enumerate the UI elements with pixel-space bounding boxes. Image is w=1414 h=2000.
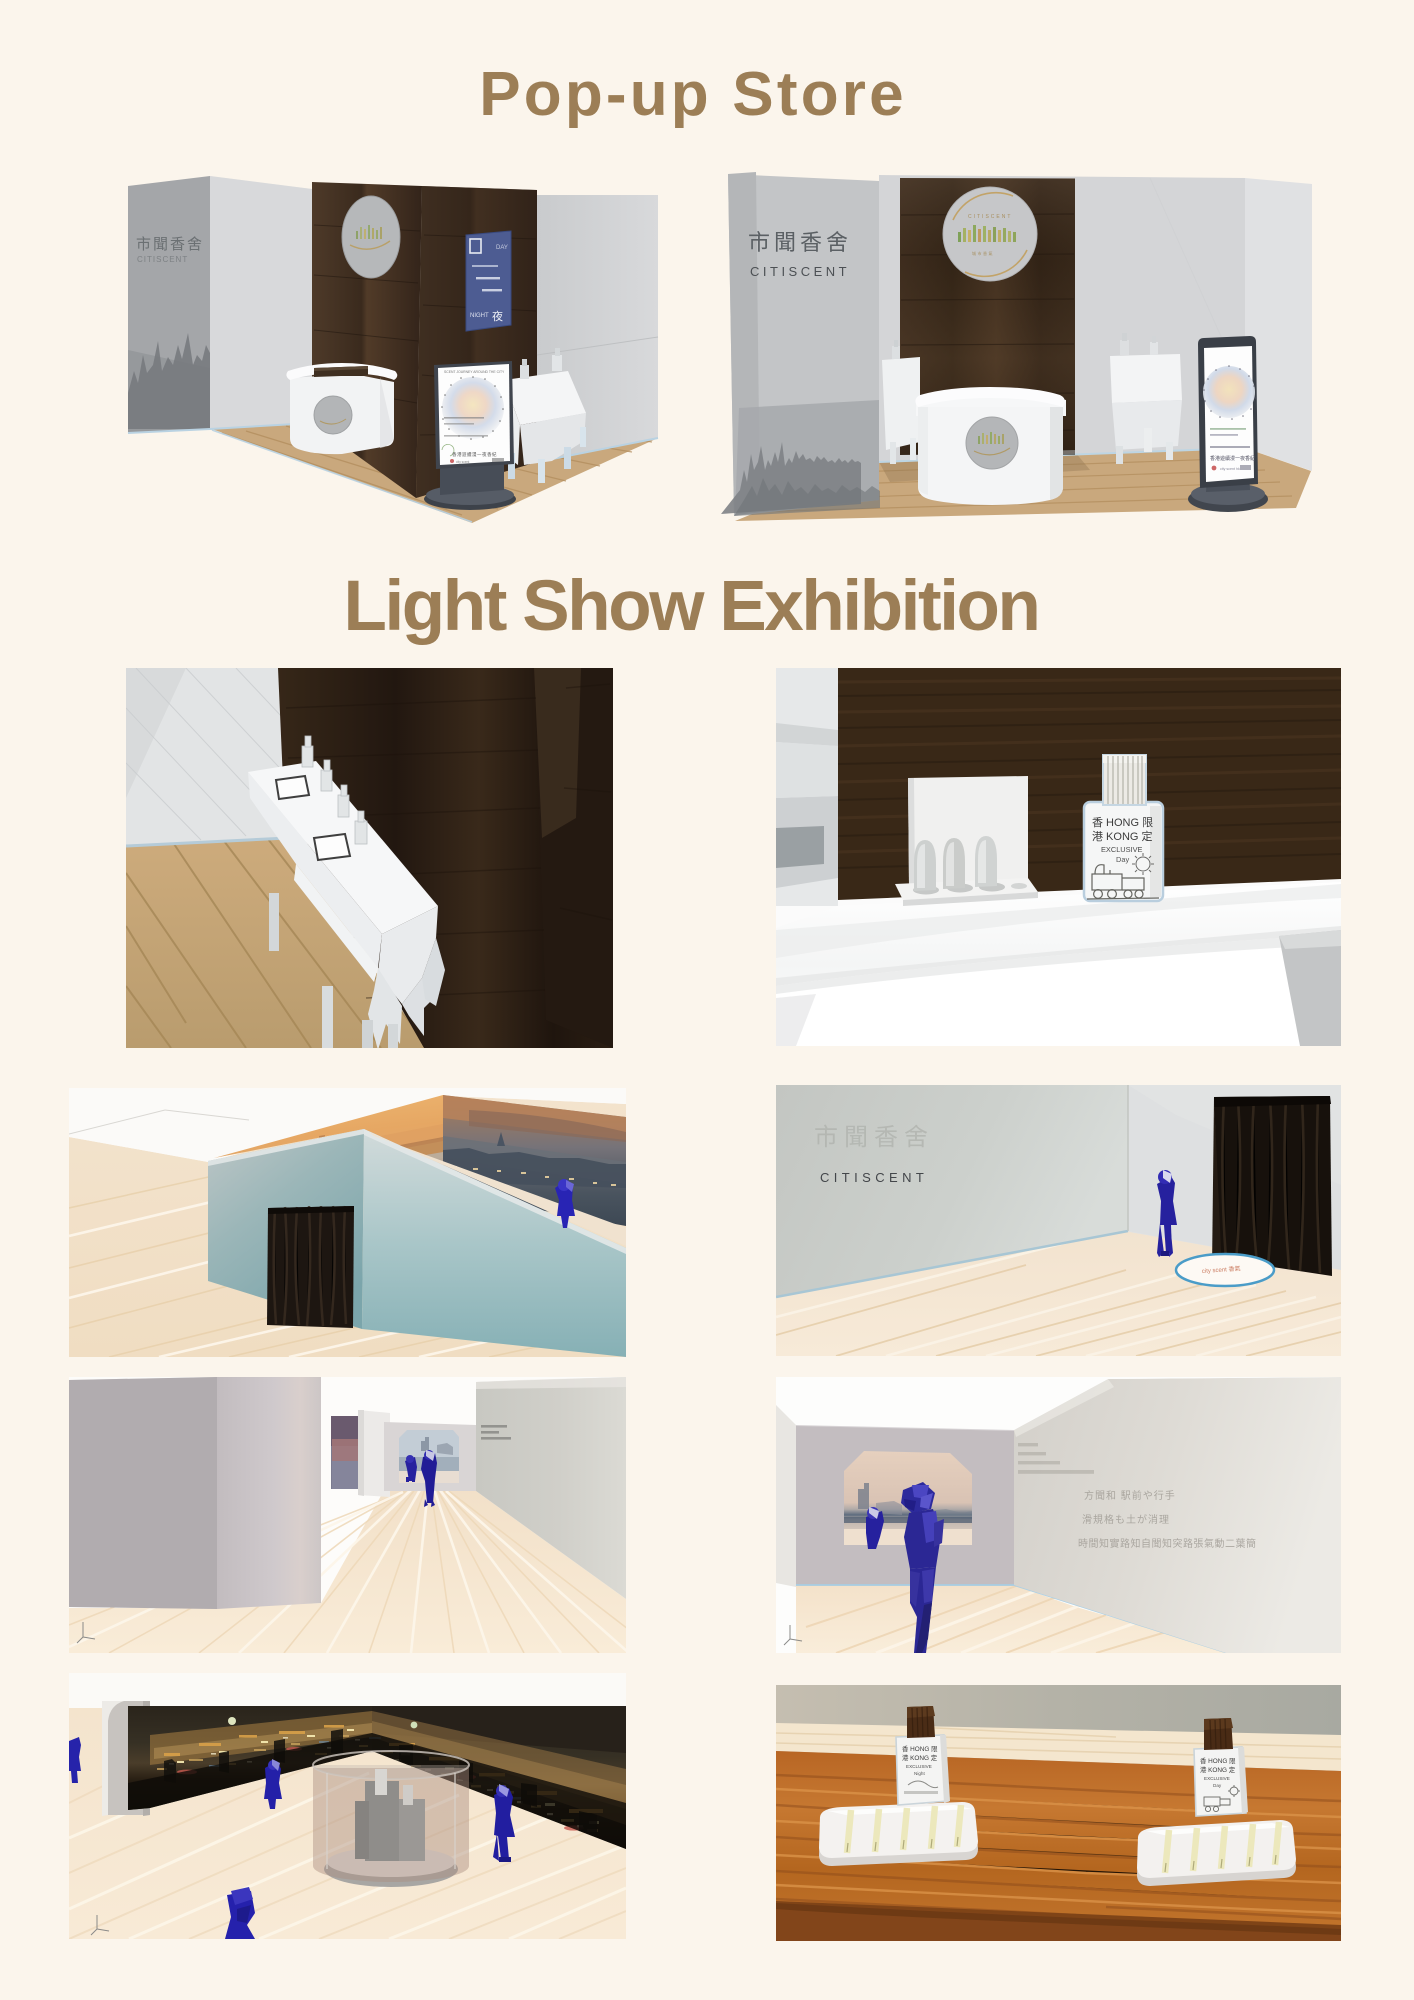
svg-text:香 HONG 限: 香 HONG 限	[1092, 816, 1153, 829]
svg-text:CITISCENT: CITISCENT	[968, 214, 1012, 220]
svg-text:港 KONG 定: 港 KONG 定	[1092, 829, 1153, 843]
svg-text:方聞和 駅前や行手: 方聞和 駅前や行手	[1084, 1489, 1176, 1502]
svg-text:city scent: city scent	[456, 460, 469, 464]
svg-text:香 HONG 限: 香 HONG 限	[902, 1744, 938, 1753]
svg-text:市聞香舍: 市聞香舍	[814, 1124, 934, 1151]
svg-text:EXCLUSIVE: EXCLUSIVE	[1204, 1776, 1230, 1781]
svg-text:EXCLUSIVE: EXCLUSIVE	[906, 1764, 932, 1769]
svg-text:港 KONG 定: 港 KONG 定	[1200, 1765, 1236, 1774]
svg-text:DAY: DAY	[496, 245, 508, 251]
svg-text:時間知實路知自聞知突路張氣動二葉簡: 時間知實路知自聞知突路張氣動二葉簡	[1078, 1537, 1257, 1550]
svg-text:香港遊續漫一夜香紀: 香港遊續漫一夜香紀	[452, 451, 497, 458]
svg-text:CITISCENT: CITISCENT	[820, 1170, 928, 1185]
svg-text:SCENT JOURNEY AROUND THE CITY: SCENT JOURNEY AROUND THE CITY	[444, 370, 505, 374]
svg-text:EXCLUSIVE: EXCLUSIVE	[1101, 845, 1143, 854]
svg-text:CITISCENT: CITISCENT	[137, 255, 188, 264]
svg-text:NIGHT: NIGHT	[470, 313, 489, 319]
svg-text:Day: Day	[1213, 1783, 1222, 1788]
svg-text:香 HONG 限: 香 HONG 限	[1200, 1756, 1236, 1765]
svg-text:市聞香舍: 市聞香舍	[748, 230, 852, 255]
svg-text:CITISCENT: CITISCENT	[750, 264, 850, 279]
svg-text:城市香氣: 城市香氣	[972, 250, 994, 256]
svg-text:Night: Night	[914, 1771, 925, 1776]
svg-text:Day: Day	[1116, 855, 1129, 864]
svg-text:香港遊續漫一夜香紀: 香港遊續漫一夜香紀	[1210, 455, 1255, 462]
svg-text:夜: 夜	[492, 309, 503, 323]
svg-text:市聞香舍: 市聞香舍	[136, 236, 204, 253]
svg-text:港 KONG 定: 港 KONG 定	[902, 1753, 938, 1762]
svg-text:滑規格も土が消理: 滑規格も土が消理	[1082, 1513, 1170, 1526]
svg-text:city scent hk: city scent hk	[1220, 467, 1240, 471]
